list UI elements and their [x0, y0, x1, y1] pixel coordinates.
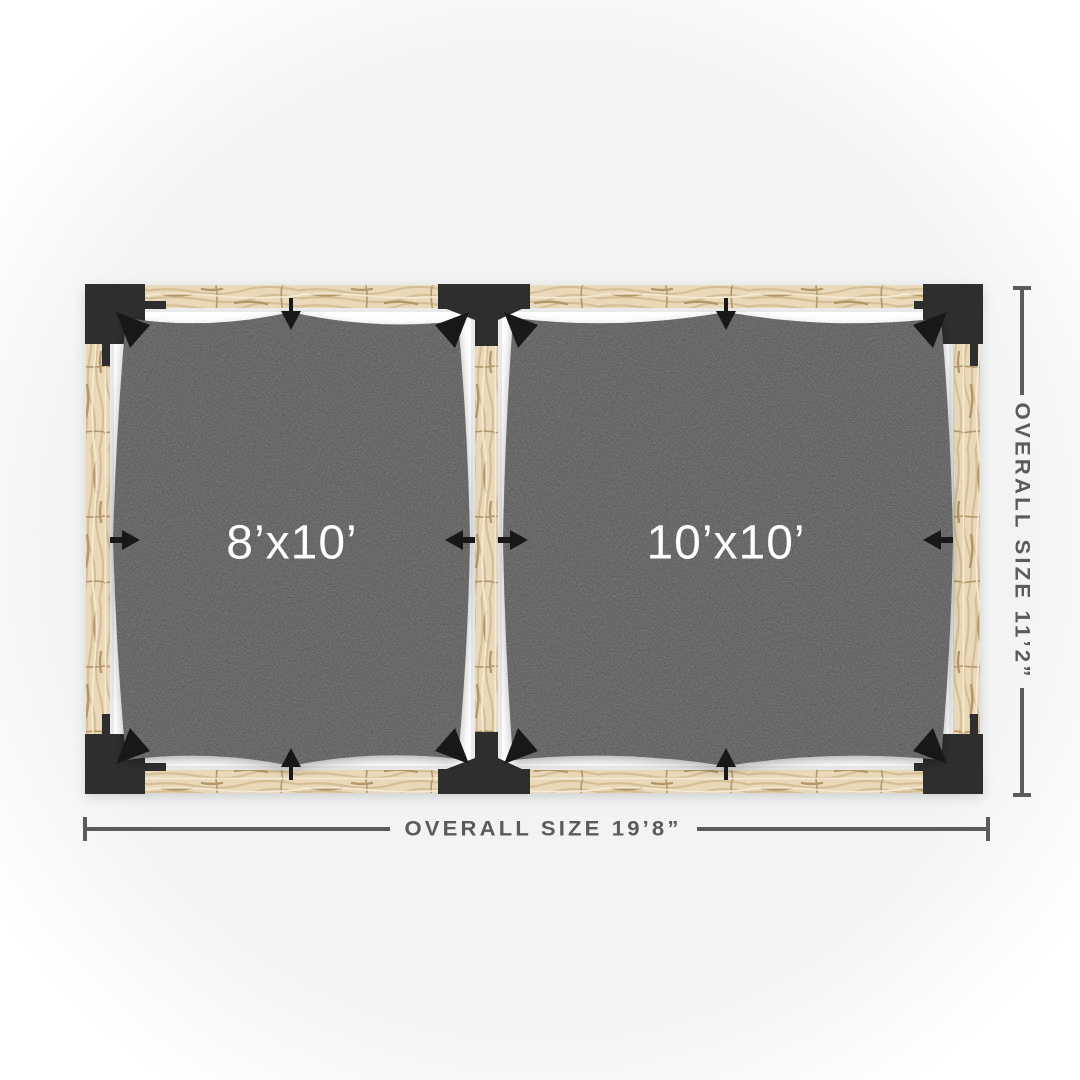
- dimension-label-width: OVERALL SIZE 19’8”: [405, 818, 682, 841]
- sail-size-label-right: 10’x10’: [646, 517, 805, 570]
- pergola-plan-diagram: 8’x10’ 10’x10’ OVERALL SIZE 19’8” OVERAL…: [0, 0, 1080, 1080]
- beam-middle: [475, 288, 498, 790]
- beam-bottom: [85, 770, 983, 793]
- pergola-plan-page: 8’x10’ 10’x10’ OVERALL SIZE 19’8” OVERAL…: [0, 0, 1080, 1080]
- dimension-label-height: OVERALL SIZE 11’2”: [1011, 403, 1034, 680]
- beam-top: [85, 285, 983, 308]
- sail-size-label-left: 8’x10’: [226, 517, 357, 570]
